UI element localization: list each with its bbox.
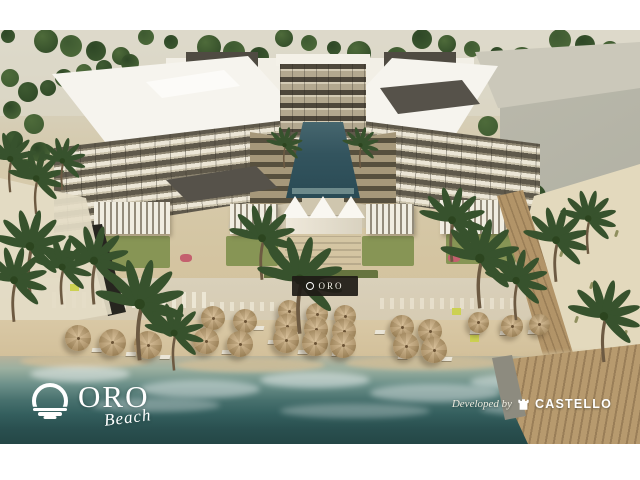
beach-lounger [375,330,386,334]
foam-patch [280,404,430,418]
palm-tree [35,139,90,194]
tree-canopy [412,30,432,49]
tree-canopy [40,80,56,96]
lime-mat [470,335,479,342]
developed-by-label: Developed by [452,398,512,410]
tree-canopy [3,101,21,119]
oro-sign-label: ORO [318,282,343,291]
foam-patch [260,372,370,388]
brand-text: ORO Beach [78,383,151,428]
tree-canopy [18,82,38,102]
tree-canopy [478,116,498,136]
beach-umbrella [393,333,419,359]
pool-steps [292,188,354,194]
tree-canopy [438,35,456,53]
beach-umbrella [421,337,447,363]
tree-canopy [24,114,44,134]
tree-canopy [164,35,178,49]
tree-canopy [1,69,19,87]
lawn-patch [362,236,414,266]
tree-canopy [60,35,82,57]
developer-name: CASTELLO [535,397,612,411]
oro-sun-wave-icon [32,383,68,419]
brand-lockup: ORO Beach [32,383,151,428]
palm-tree [263,128,306,171]
oro-sign-ring-icon [306,282,314,290]
tree-canopy [301,35,317,51]
oro-entrance-sign: ORO [292,276,358,296]
bottom-white-border [0,444,640,480]
palm-tree [561,282,640,368]
palm-tree [139,305,209,375]
foam-patch [140,380,260,398]
pergola-roof [366,204,414,234]
center-residence-facade [280,64,366,132]
rendering-frame: ORO ORO Beach Developed by CASTELLO [0,0,640,480]
castello-castle-icon [517,398,530,411]
palm-tree [339,128,382,171]
tree-canopy [86,41,106,61]
top-white-border [0,0,640,30]
tree-canopy [34,30,58,53]
palm-tree [555,192,621,258]
tree-canopy [327,41,341,55]
developer-credit: Developed by CASTELLO [452,397,612,411]
